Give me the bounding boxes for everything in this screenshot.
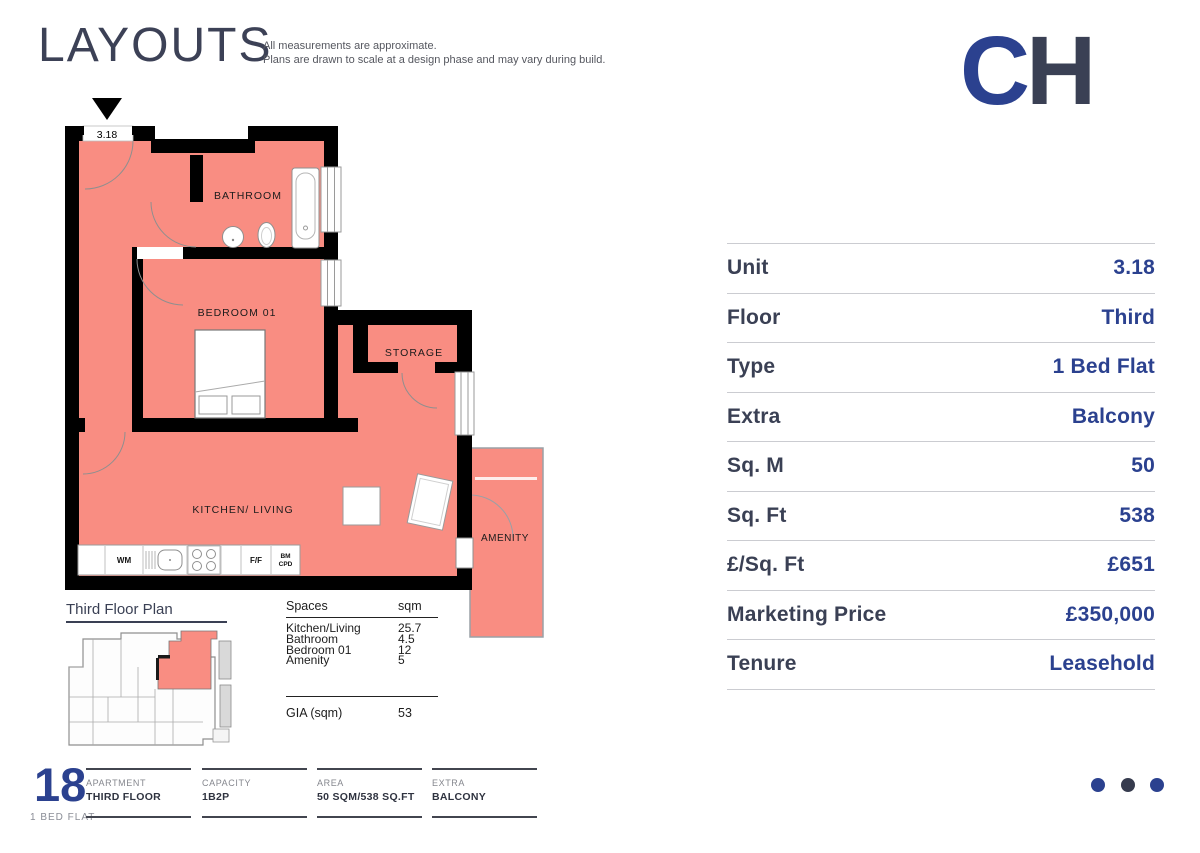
spaces-table: Spaces sqm Kitchen/Living 25.7 Bathroom …: [286, 599, 438, 720]
footer-section-extra: EXTRA BALCONY: [432, 768, 537, 818]
footer-section-value: BALCONY: [432, 791, 537, 803]
page-title: LAYOUTS: [38, 18, 273, 73]
core-block-2: [220, 685, 231, 727]
detail-row-tenure: Tenure Leasehold: [727, 639, 1155, 690]
footer-section-label: EXTRA: [432, 778, 537, 788]
table-icon: [343, 487, 380, 525]
page-dot-2: [1121, 778, 1135, 792]
toilet-icon: [258, 223, 275, 248]
cpd-label: CPD: [279, 561, 293, 568]
basin-icon: [223, 227, 244, 248]
detail-row-extra: Extra Balcony: [727, 392, 1155, 442]
bed-icon: [195, 330, 265, 418]
detail-label: Type: [727, 355, 775, 379]
page-dot-1: [1091, 778, 1105, 792]
core-block-1: [219, 641, 231, 679]
space-sqm: 5: [398, 655, 438, 666]
entrance-arrow-icon: [92, 98, 122, 120]
detail-row-unit: Unit 3.18: [727, 243, 1155, 293]
bathtub-icon: [292, 168, 319, 248]
disclaimer-line-1: All measurements are approximate.: [263, 39, 605, 53]
detail-label: Floor: [727, 306, 781, 330]
unit-number-label: 3.18: [97, 129, 118, 141]
spaces-row: Amenity 5: [286, 655, 438, 666]
layout-sheet: LAYOUTS All measurements are approximate…: [0, 0, 1200, 853]
footer-section-capacity: CAPACITY 1B2P: [202, 768, 307, 818]
detail-value: 50: [1131, 454, 1155, 478]
bathroom-label: BATHROOM: [214, 190, 282, 202]
detail-label: £/Sq. Ft: [727, 553, 804, 577]
brand-logo: CH: [960, 22, 1092, 119]
detail-value: Third: [1102, 306, 1156, 330]
apartment-number: 18: [34, 757, 86, 812]
bm-label: BM: [280, 553, 290, 560]
kitchen-living-label: KITCHEN/ LIVING: [192, 504, 293, 516]
spaces-unit-header: sqm: [398, 599, 438, 613]
fridge-freezer-label: F/F: [250, 556, 262, 565]
detail-label: Sq. M: [727, 454, 784, 478]
hob-icon: [188, 546, 220, 574]
footer-section-area: AREA 50 SQM/538 SQ.FT: [317, 768, 422, 818]
storage-label: STORAGE: [385, 347, 443, 359]
detail-label: Sq. Ft: [727, 504, 787, 528]
spaces-header: Spaces: [286, 599, 398, 613]
detail-value: £350,000: [1066, 603, 1155, 627]
detail-value: Balcony: [1072, 405, 1155, 429]
footer-section-label: AREA: [317, 778, 422, 788]
unit-details-table: Unit 3.18 Floor Third Type 1 Bed Flat Ex…: [727, 243, 1155, 690]
footer-section-apartment: APARTMENT THIRD FLOOR: [86, 768, 191, 818]
detail-label: Tenure: [727, 652, 797, 676]
detail-label: Marketing Price: [727, 603, 886, 627]
logo-letter-h: H: [1026, 16, 1092, 125]
key-plan-rule: [66, 621, 227, 623]
gia-row: GIA (sqm) 53: [286, 697, 438, 720]
page-dot-3: [1150, 778, 1164, 792]
disclaimer-text: All measurements are approximate. Plans …: [263, 39, 605, 67]
amenity-label: AMENITY: [481, 533, 529, 544]
key-plan-title: Third Floor Plan: [66, 601, 173, 618]
detail-label: Unit: [727, 256, 769, 280]
detail-row-type: Type 1 Bed Flat: [727, 342, 1155, 392]
key-plan-drawing: [63, 627, 238, 752]
footer-section-value: THIRD FLOOR: [86, 791, 191, 803]
space-name: Amenity: [286, 655, 398, 666]
detail-label: Extra: [727, 405, 781, 429]
detail-row-sqft: Sq. Ft 538: [727, 491, 1155, 541]
detail-value: 538: [1119, 504, 1155, 528]
gia-label: GIA (sqm): [286, 706, 398, 720]
footer-section-value: 50 SQM/538 SQ.FT: [317, 791, 422, 803]
detail-value: 3.18: [1113, 256, 1155, 280]
disclaimer-line-2: Plans are drawn to scale at a design pha…: [263, 53, 605, 67]
logo-letter-c: C: [960, 16, 1026, 125]
footer-section-label: CAPACITY: [202, 778, 307, 788]
kitchen-counter: WM F/F BM CPD: [78, 545, 300, 575]
detail-row-floor: Floor Third: [727, 293, 1155, 343]
detail-value: £651: [1107, 553, 1155, 577]
washing-machine-label: WM: [117, 556, 132, 565]
detail-row-sqm: Sq. M 50: [727, 441, 1155, 491]
detail-value: 1 Bed Flat: [1053, 355, 1155, 379]
detail-row-price-per-sqft: £/Sq. Ft £651: [727, 540, 1155, 590]
detail-row-marketing-price: Marketing Price £350,000: [727, 590, 1155, 640]
footer-section-label: APARTMENT: [86, 778, 191, 788]
detail-value: Leasehold: [1049, 652, 1155, 676]
bedroom-label: BEDROOM 01: [198, 307, 277, 319]
footer-section-value: 1B2P: [202, 791, 307, 803]
gia-value: 53: [398, 706, 438, 720]
floor-plan: WM F/F BM CPD 3.18 BATHROOM BEDROOM 01 S…: [55, 95, 555, 645]
